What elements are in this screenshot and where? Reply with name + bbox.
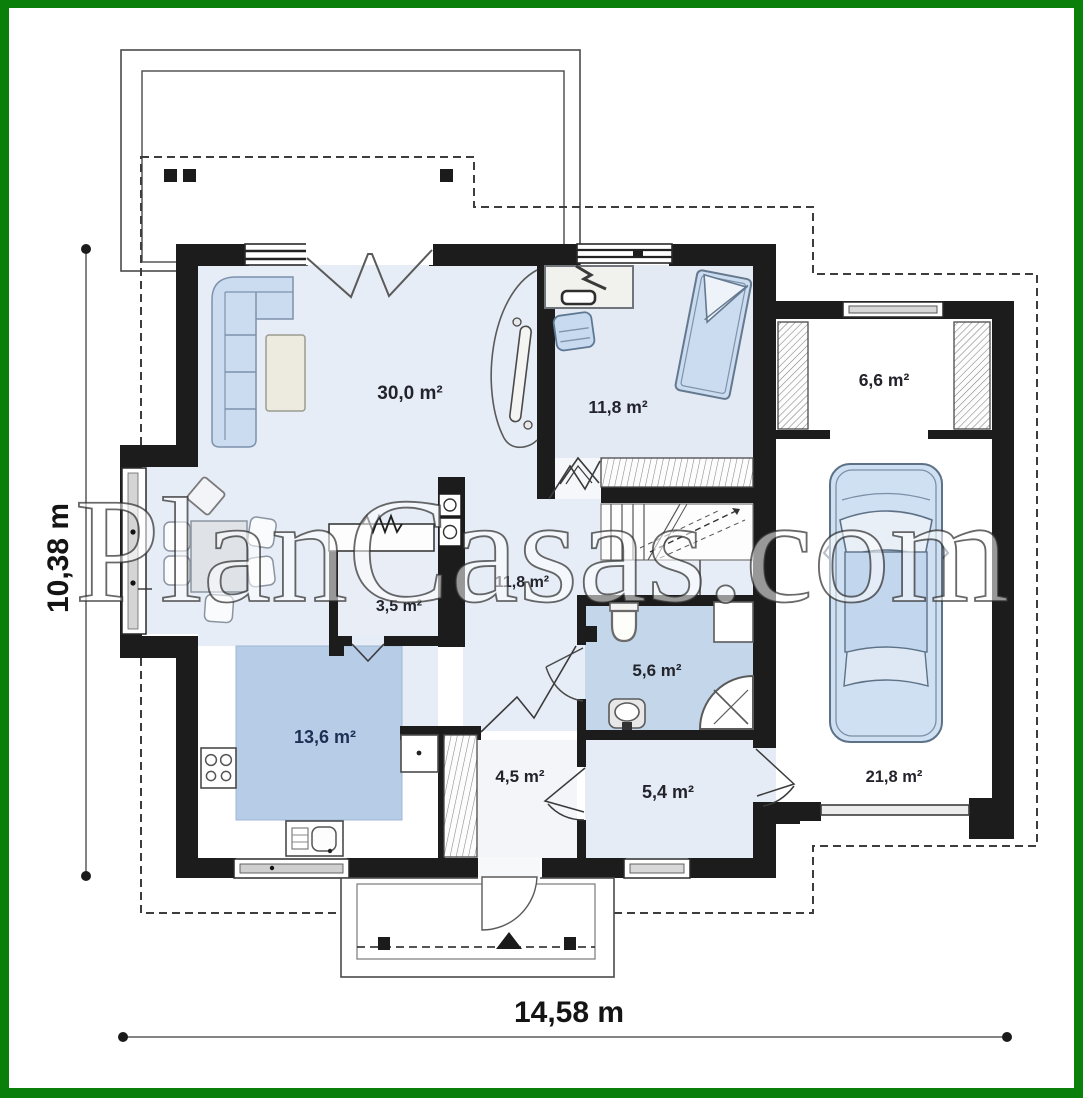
svg-text:5,4 m²: 5,4 m² xyxy=(642,782,694,802)
svg-text:30,0 m²: 30,0 m² xyxy=(377,383,442,404)
svg-text:10,38 m: 10,38 m xyxy=(42,503,75,613)
svg-text:PlanCasas.com: PlanCasas.com xyxy=(75,468,1010,634)
svg-text:6,6 m²: 6,6 m² xyxy=(859,370,910,390)
svg-text:21,8 m²: 21,8 m² xyxy=(866,768,923,786)
svg-text:4,5 m²: 4,5 m² xyxy=(495,767,544,786)
svg-text:14,58 m: 14,58 m xyxy=(514,996,624,1029)
svg-text:13,6 m²: 13,6 m² xyxy=(294,727,356,747)
svg-text:5,6 m²: 5,6 m² xyxy=(632,661,681,680)
svg-text:11,8 m²: 11,8 m² xyxy=(588,397,648,417)
